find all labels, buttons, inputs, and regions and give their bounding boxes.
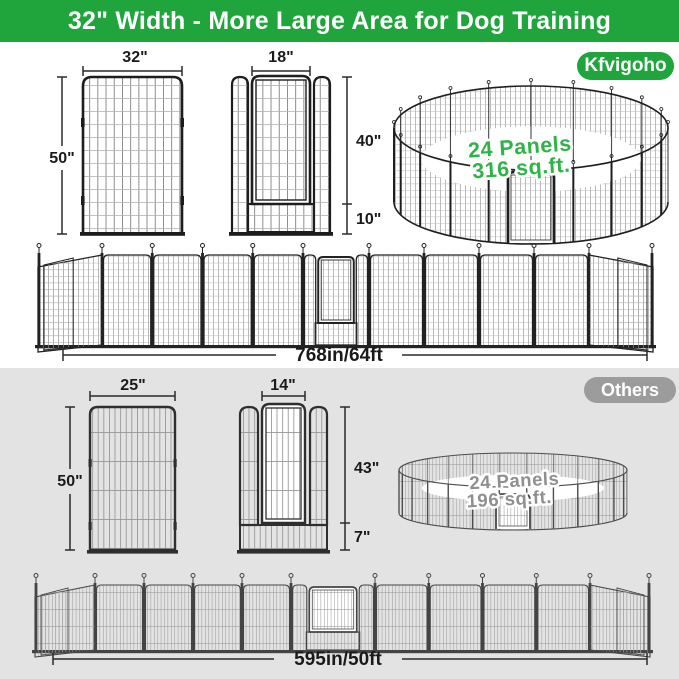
pen-capacity-overlay: 24 Panels 316 sq.ft. bbox=[467, 131, 574, 183]
door-width-measure bbox=[252, 66, 310, 76]
brand-badge-label: Kfvigoho bbox=[584, 55, 666, 77]
side-strip-left bbox=[240, 407, 258, 525]
hinge-right bbox=[174, 459, 177, 467]
hinge-right-low bbox=[174, 522, 177, 530]
door-width-label: 14" bbox=[270, 377, 295, 394]
panel-width-measure bbox=[83, 66, 182, 76]
door-height-label: 40" bbox=[356, 133, 381, 150]
kfvigoho-panel-diagram: 32" 50" bbox=[40, 46, 190, 240]
brand-badge: Kfvigoho bbox=[577, 52, 674, 80]
bottom-mesh-section bbox=[240, 525, 327, 550]
total-width-label: 768in/64ft bbox=[295, 345, 383, 366]
panel-base-bar bbox=[229, 232, 333, 236]
door-bottom-height-label: 10" bbox=[356, 211, 381, 228]
panel-width-label: 25" bbox=[120, 377, 145, 394]
kfvigoho-layout-row-diagram: 768in/64ft bbox=[28, 243, 663, 368]
page-title: 32" Width - More Large Area for Dog Trai… bbox=[68, 7, 611, 36]
fence-panel bbox=[83, 77, 182, 234]
others-door-panel-diagram: 14" 43" 7" bbox=[215, 374, 390, 560]
panel-base-bar bbox=[237, 550, 330, 554]
title-bar: 32" Width - More Large Area for Dog Trai… bbox=[0, 0, 679, 42]
door-height-measure bbox=[342, 77, 352, 234]
others-badge: Others bbox=[584, 377, 676, 403]
others-panel-diagram: 25" 50" bbox=[25, 374, 180, 560]
fence-row bbox=[35, 244, 656, 353]
hinge-left bbox=[89, 459, 92, 467]
panel-base-bar bbox=[80, 232, 185, 236]
side-strip-right bbox=[314, 77, 330, 234]
others-badge-label: Others bbox=[601, 380, 659, 401]
panel-height-label: 50" bbox=[57, 473, 82, 490]
hinge-right-top bbox=[180, 118, 184, 127]
product-comparison-image: 32" Width - More Large Area for Dog Trai… bbox=[0, 0, 679, 679]
kfvigoho-pen-diagram: 24 Panels 316 sq.ft. bbox=[385, 78, 677, 250]
total-width-label: 595in/50ft bbox=[294, 649, 382, 670]
door-mesh bbox=[256, 80, 306, 200]
fence-row bbox=[32, 574, 653, 658]
hinge-left-top bbox=[81, 118, 85, 127]
pen-area-label: 196 sq.ft. bbox=[466, 486, 552, 511]
side-strip-left bbox=[232, 77, 248, 234]
others-layout-row-diagram: 595in/50ft bbox=[18, 575, 663, 679]
hinge-left-low bbox=[89, 522, 92, 530]
door-height-label: 43" bbox=[354, 460, 379, 477]
kfvigoho-door-panel-diagram: 18" 40" 10" bbox=[205, 46, 383, 240]
panel-base-bar bbox=[87, 550, 178, 554]
side-strip-right bbox=[310, 407, 327, 525]
others-pen-diagram: 24 Panels 196 sq.ft. bbox=[395, 447, 635, 541]
panel-height-label: 50" bbox=[49, 150, 74, 167]
fence-panel bbox=[90, 407, 175, 550]
door-height-measure bbox=[340, 407, 350, 550]
hinge-left-bottom bbox=[81, 196, 85, 205]
hinge-right-bottom bbox=[180, 196, 184, 205]
door-width-label: 18" bbox=[268, 49, 293, 66]
pen-capacity-overlay: 24 Panels 196 sq.ft. bbox=[465, 468, 560, 512]
panel-width-label: 32" bbox=[122, 49, 147, 66]
door-mesh bbox=[266, 408, 301, 519]
bottom-mesh-section bbox=[248, 204, 314, 232]
door-bottom-height-label: 7" bbox=[354, 529, 370, 546]
